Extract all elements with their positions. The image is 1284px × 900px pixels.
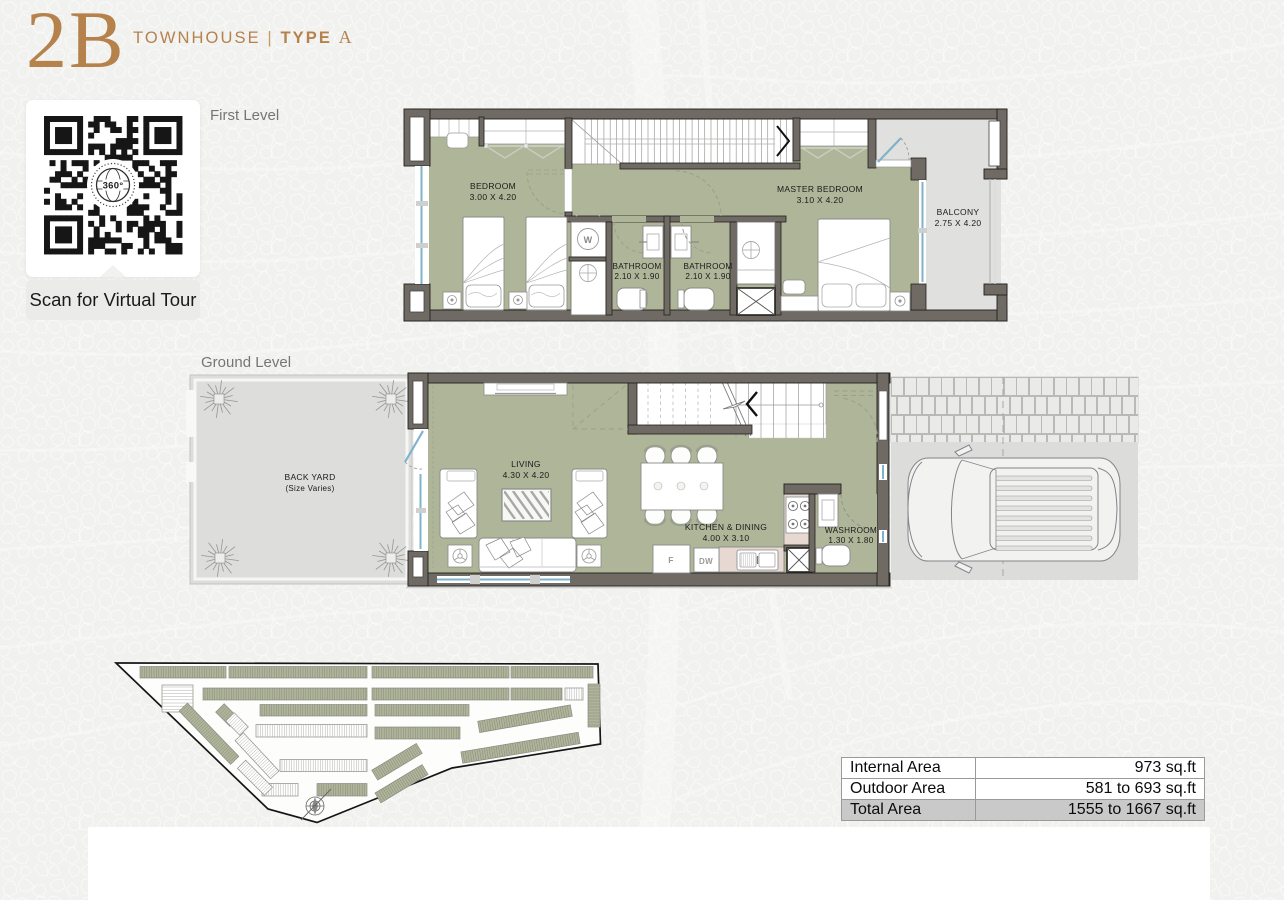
svg-text:360°: 360° <box>103 181 124 192</box>
